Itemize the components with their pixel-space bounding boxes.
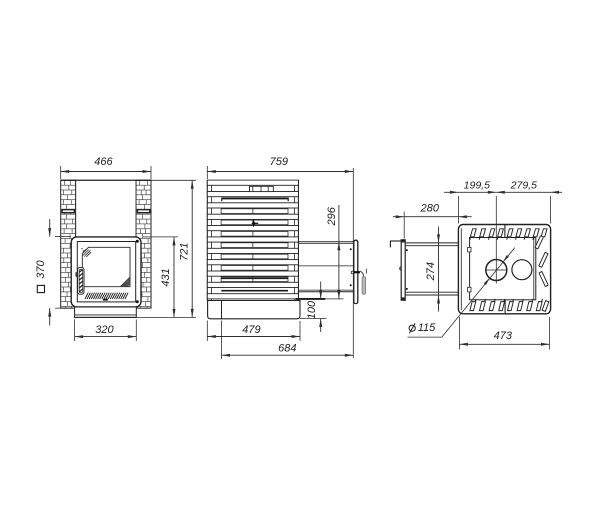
svg-text:721: 721 [179,243,191,261]
svg-text:115: 115 [418,322,436,334]
svg-text:370: 370 [35,259,47,278]
svg-text:759: 759 [270,156,288,168]
svg-text:684: 684 [278,343,296,355]
svg-text:466: 466 [94,156,113,168]
svg-text:274: 274 [425,262,437,281]
svg-text:100: 100 [306,300,318,319]
svg-text:473: 473 [494,330,513,342]
svg-text:320: 320 [95,324,114,336]
svg-text:431: 431 [160,268,172,286]
svg-text:296: 296 [326,206,338,226]
svg-text:479: 479 [242,324,260,336]
svg-text:280: 280 [420,203,440,215]
svg-text:279,5: 279,5 [510,179,537,191]
svg-text:199,5: 199,5 [464,179,490,191]
